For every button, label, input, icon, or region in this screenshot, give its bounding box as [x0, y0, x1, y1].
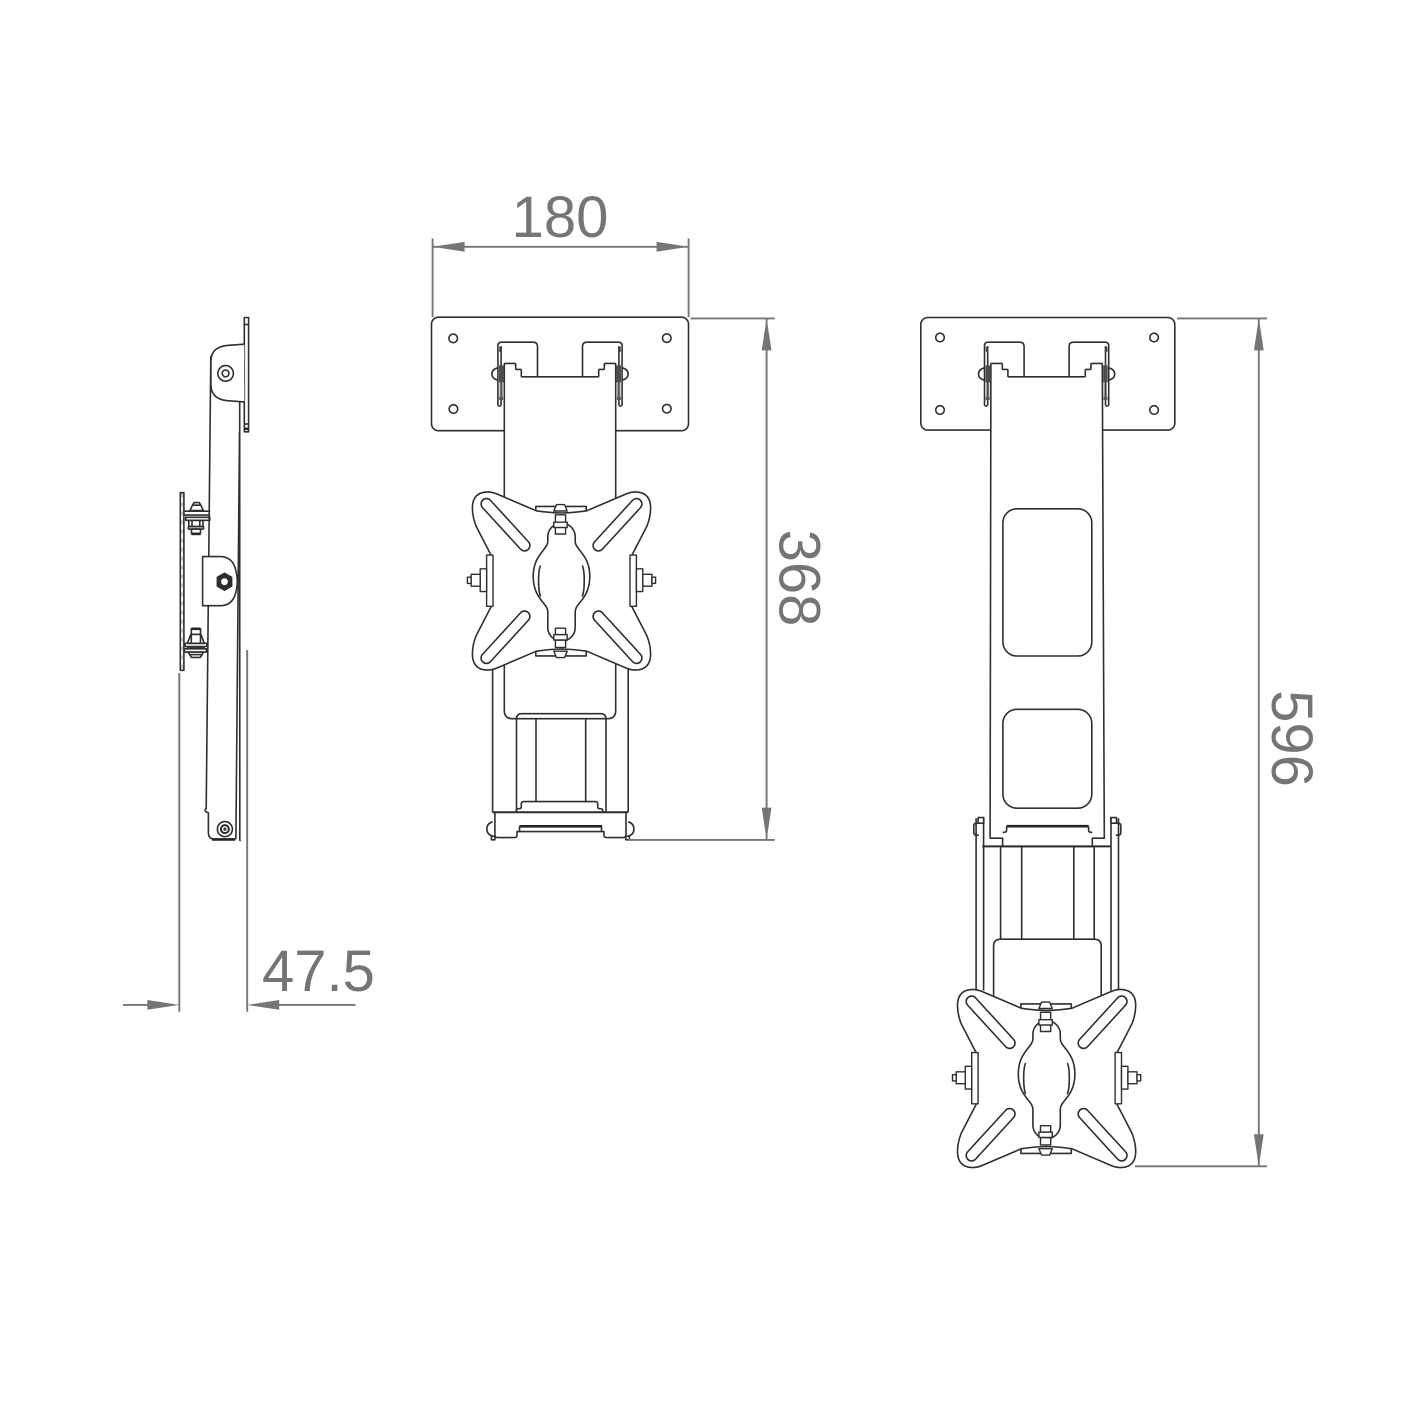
svg-text:47.5: 47.5	[262, 939, 375, 1004]
svg-text:596: 596	[1259, 690, 1324, 787]
svg-text:368: 368	[767, 530, 832, 627]
svg-text:180: 180	[512, 185, 609, 250]
